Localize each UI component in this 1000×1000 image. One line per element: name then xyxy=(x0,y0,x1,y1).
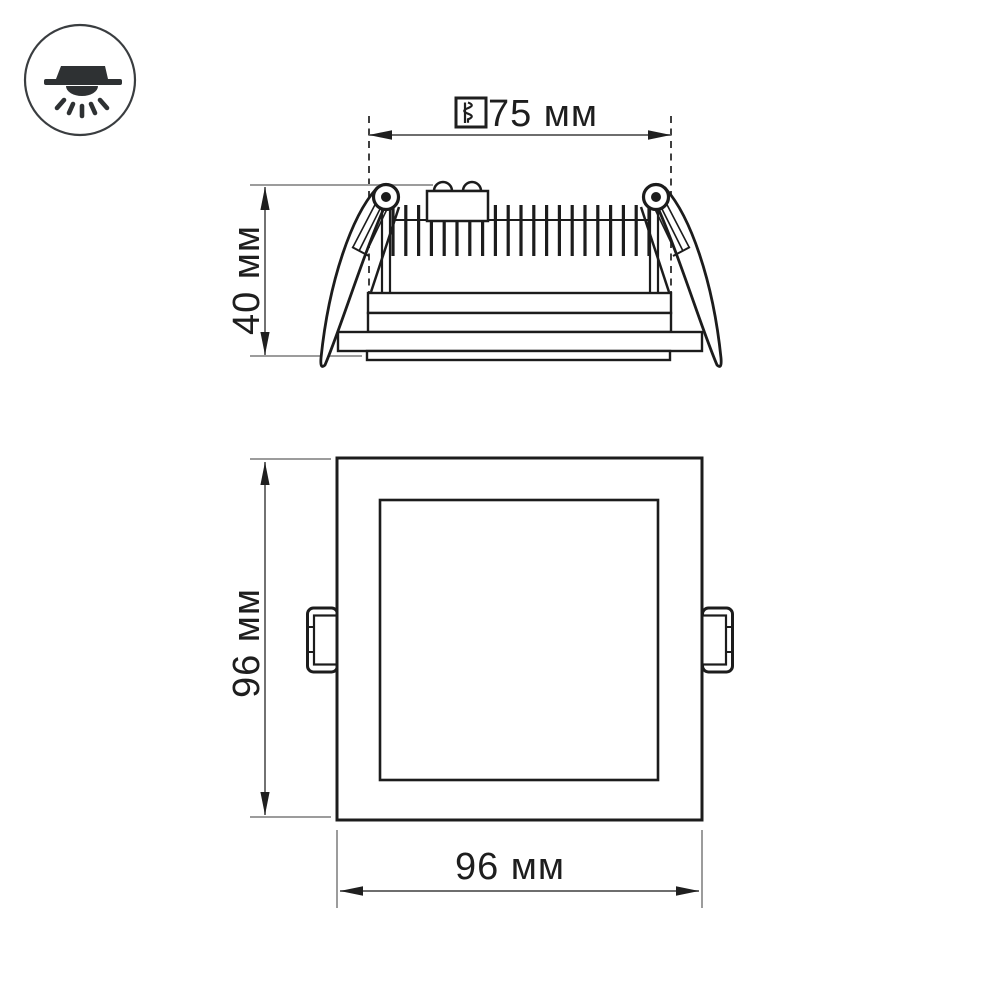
cutout-dimension-label: 75 мм xyxy=(488,93,598,135)
front-width-dimension-label: 96 мм xyxy=(455,846,565,888)
side-view xyxy=(321,182,721,366)
cutout-extension-lines xyxy=(369,116,671,292)
mount-type-badge xyxy=(25,25,135,135)
front-width-dimension: 96 мм xyxy=(337,830,702,908)
drawing-canvas: 75 мм 40 мм xyxy=(0,0,1000,1000)
terminal-block xyxy=(427,182,488,221)
fixture-glass-edge xyxy=(367,351,670,360)
mounting-tab-left xyxy=(308,608,339,672)
front-height-dimension-label: 96 мм xyxy=(226,588,268,698)
depth-dimension-label: 40 мм xyxy=(226,225,268,335)
fixture-body xyxy=(338,293,702,360)
cutout-hole-icon xyxy=(456,98,486,127)
technical-drawing: 75 мм 40 мм xyxy=(0,0,1000,1000)
cutout-dimension: 75 мм xyxy=(369,93,671,292)
panel-inner-window xyxy=(380,500,658,780)
mounting-tab-right xyxy=(702,608,733,672)
front-view xyxy=(308,458,733,820)
fixture-flange xyxy=(338,332,702,351)
